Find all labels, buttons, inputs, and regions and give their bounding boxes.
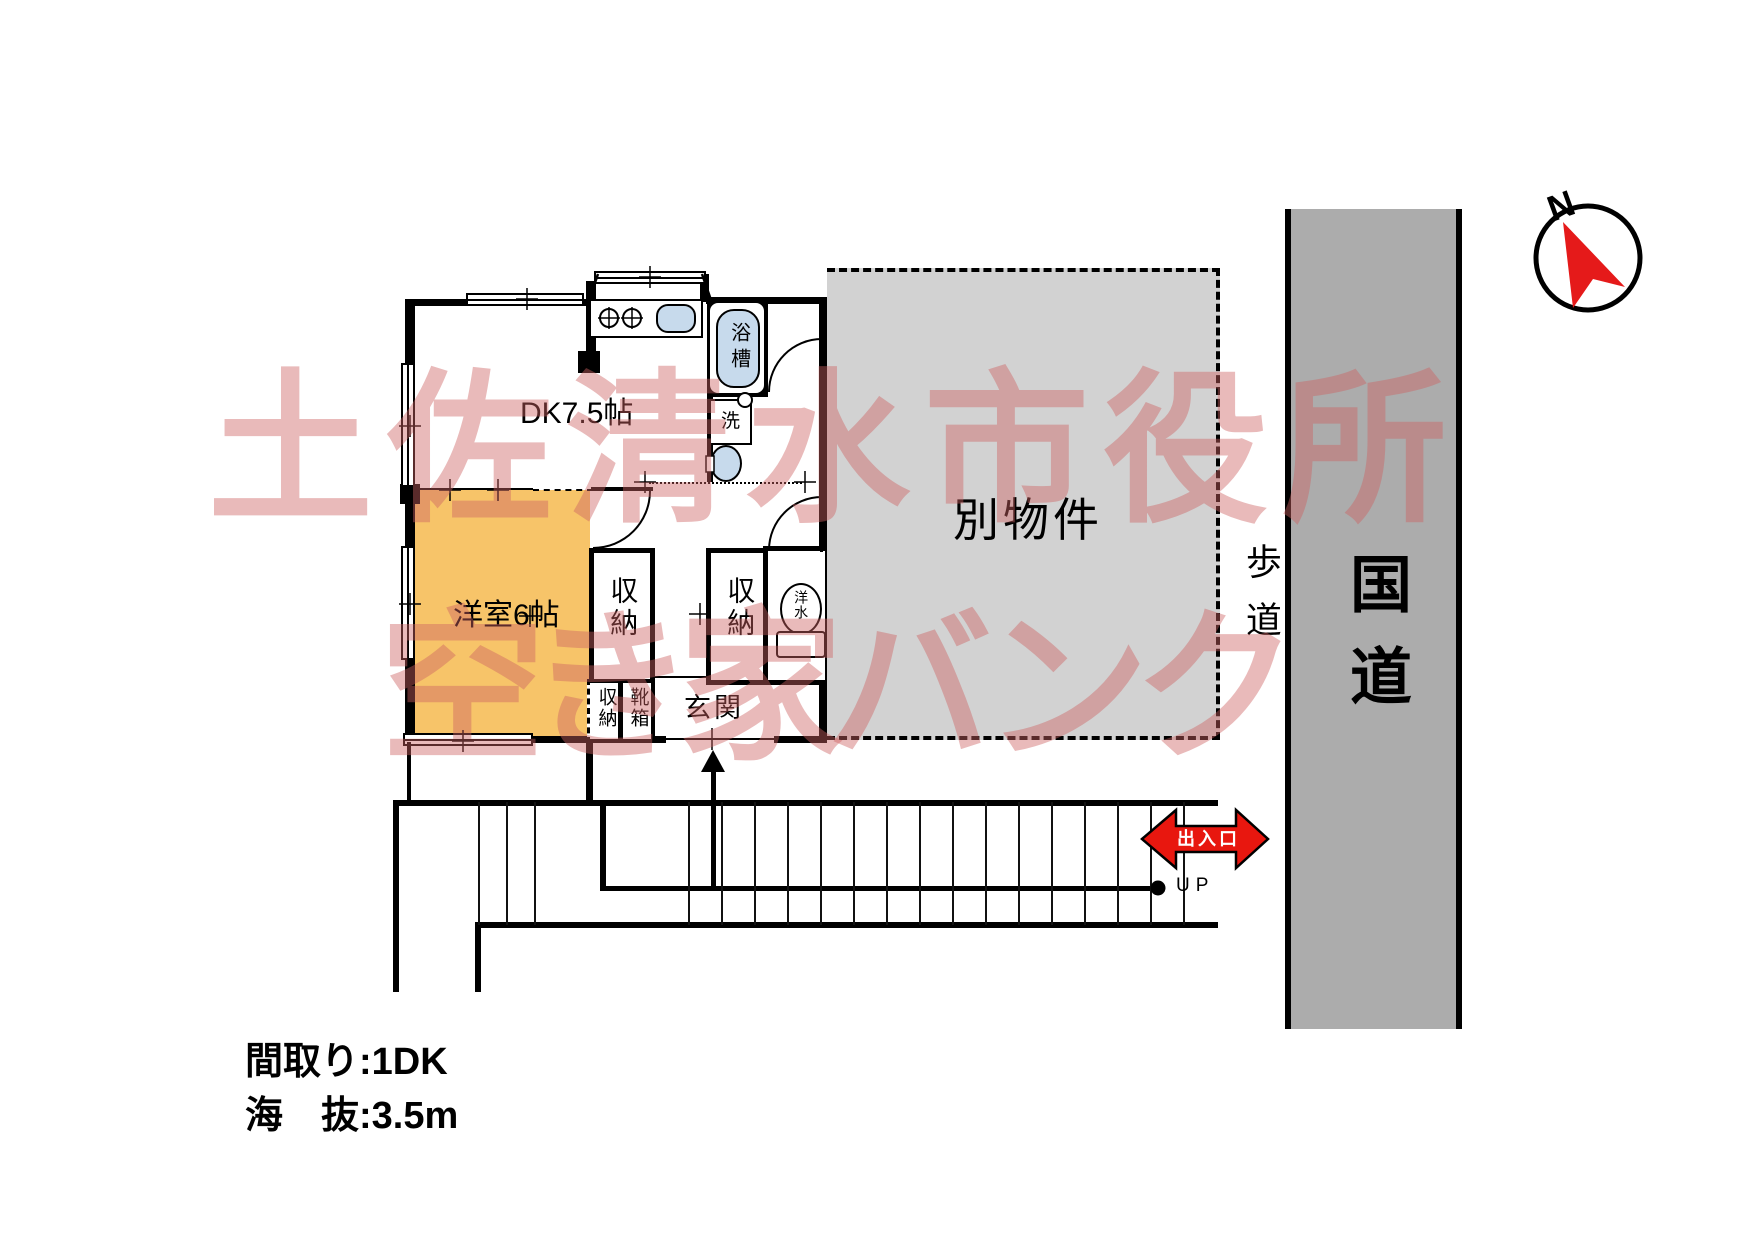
stair-tread xyxy=(985,802,987,925)
toilet-label: 洋水 xyxy=(793,590,808,620)
closet-right-label: 収納 xyxy=(724,576,754,640)
shoe-box-label: 靴箱 xyxy=(627,687,648,729)
dk-label: DK7.5帖 xyxy=(520,398,633,430)
footer-layout: 間取り:1DK xyxy=(245,1042,448,1083)
stair-tread xyxy=(919,802,921,925)
stair-tread xyxy=(1117,802,1119,925)
stair-tread xyxy=(1051,802,1053,925)
stair-tread xyxy=(853,802,855,925)
stair-tread xyxy=(506,802,508,925)
stair-tread xyxy=(754,802,756,925)
entrance-label: 玄関 xyxy=(684,694,744,723)
western-room-label: 洋室6帖 xyxy=(453,600,560,632)
closet-left-label: 収納 xyxy=(607,576,637,640)
stair-tread xyxy=(952,802,954,925)
footer-elevation: 海 抜:3.5m xyxy=(245,1096,458,1137)
stair-tread xyxy=(820,802,822,925)
bathtub-label: 浴槽 xyxy=(727,322,749,374)
floor-plan-canvas: 国道 歩道 別物件 xyxy=(0,0,1754,1240)
stair-tread xyxy=(1018,802,1020,925)
stair-tread xyxy=(886,802,888,925)
stair-tread xyxy=(787,802,789,925)
stair-tread xyxy=(478,802,480,925)
stair-tread xyxy=(1150,802,1152,925)
stair-tread xyxy=(1084,802,1086,925)
exit-label: 出入口 xyxy=(1177,830,1240,849)
stair-tread xyxy=(534,802,536,925)
washer-label: 洗 xyxy=(721,412,740,433)
up-label: UP xyxy=(1176,876,1214,897)
stair-tread xyxy=(721,802,723,925)
stair-tread xyxy=(1183,802,1185,925)
closet-entrance-label: 収納 xyxy=(595,687,616,729)
sidewalk-label: 歩道 xyxy=(1241,543,1280,659)
other-property-label: 別物件 xyxy=(953,496,1103,546)
national-road-label: 国道 xyxy=(1340,552,1407,736)
stair-tread xyxy=(688,802,690,925)
